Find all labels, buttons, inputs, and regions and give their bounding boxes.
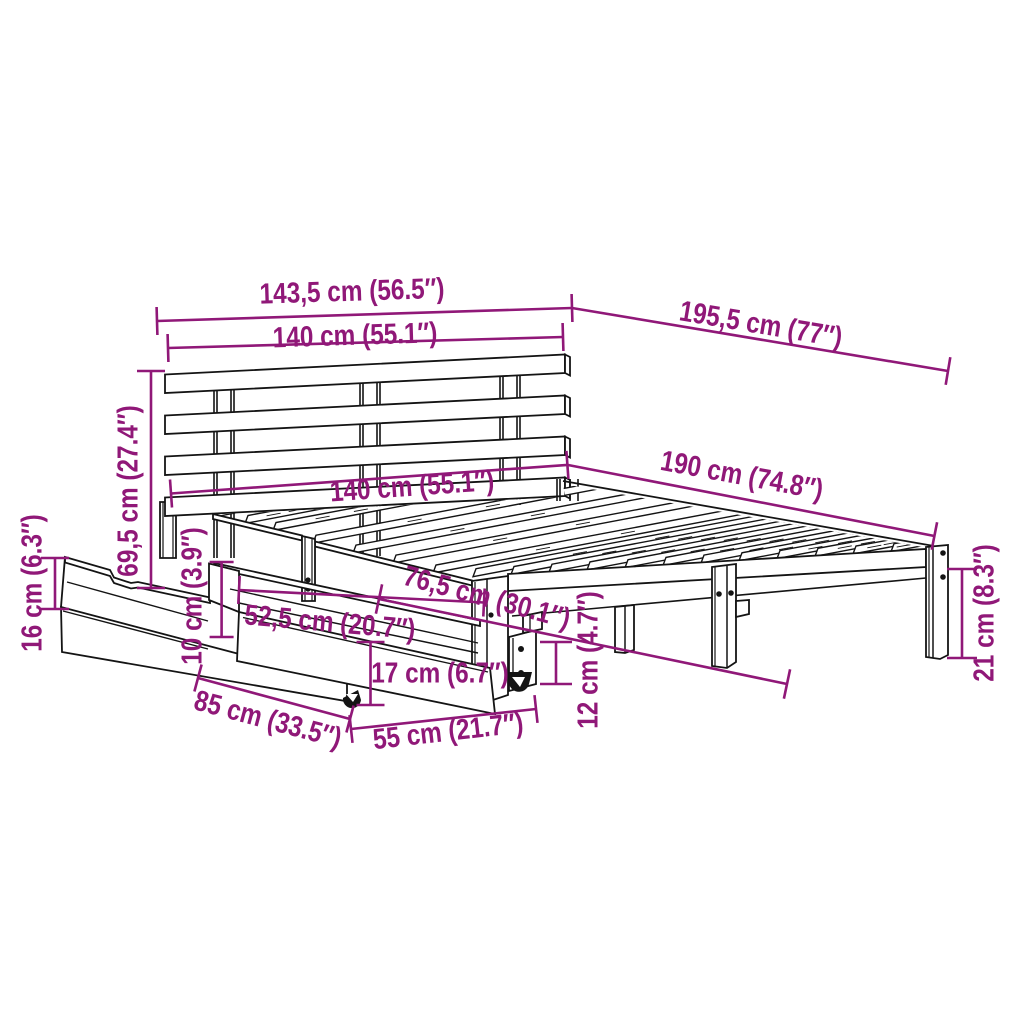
svg-text:69,5 cm (27.4″): 69,5 cm (27.4″) (112, 405, 144, 576)
svg-text:21 cm (8.3″): 21 cm (8.3″) (968, 544, 1000, 682)
svg-text:140 cm (55.1″): 140 cm (55.1″) (272, 316, 438, 354)
svg-text:143,5 cm (56.5″): 143,5 cm (56.5″) (259, 272, 445, 310)
svg-text:12 cm (4.7″): 12 cm (4.7″) (572, 591, 604, 729)
svg-text:17 cm (6.7″): 17 cm (6.7″) (371, 657, 509, 689)
svg-text:10 cm (3.9″): 10 cm (3.9″) (176, 527, 208, 665)
svg-text:16 cm (6.3″): 16 cm (6.3″) (16, 514, 48, 652)
